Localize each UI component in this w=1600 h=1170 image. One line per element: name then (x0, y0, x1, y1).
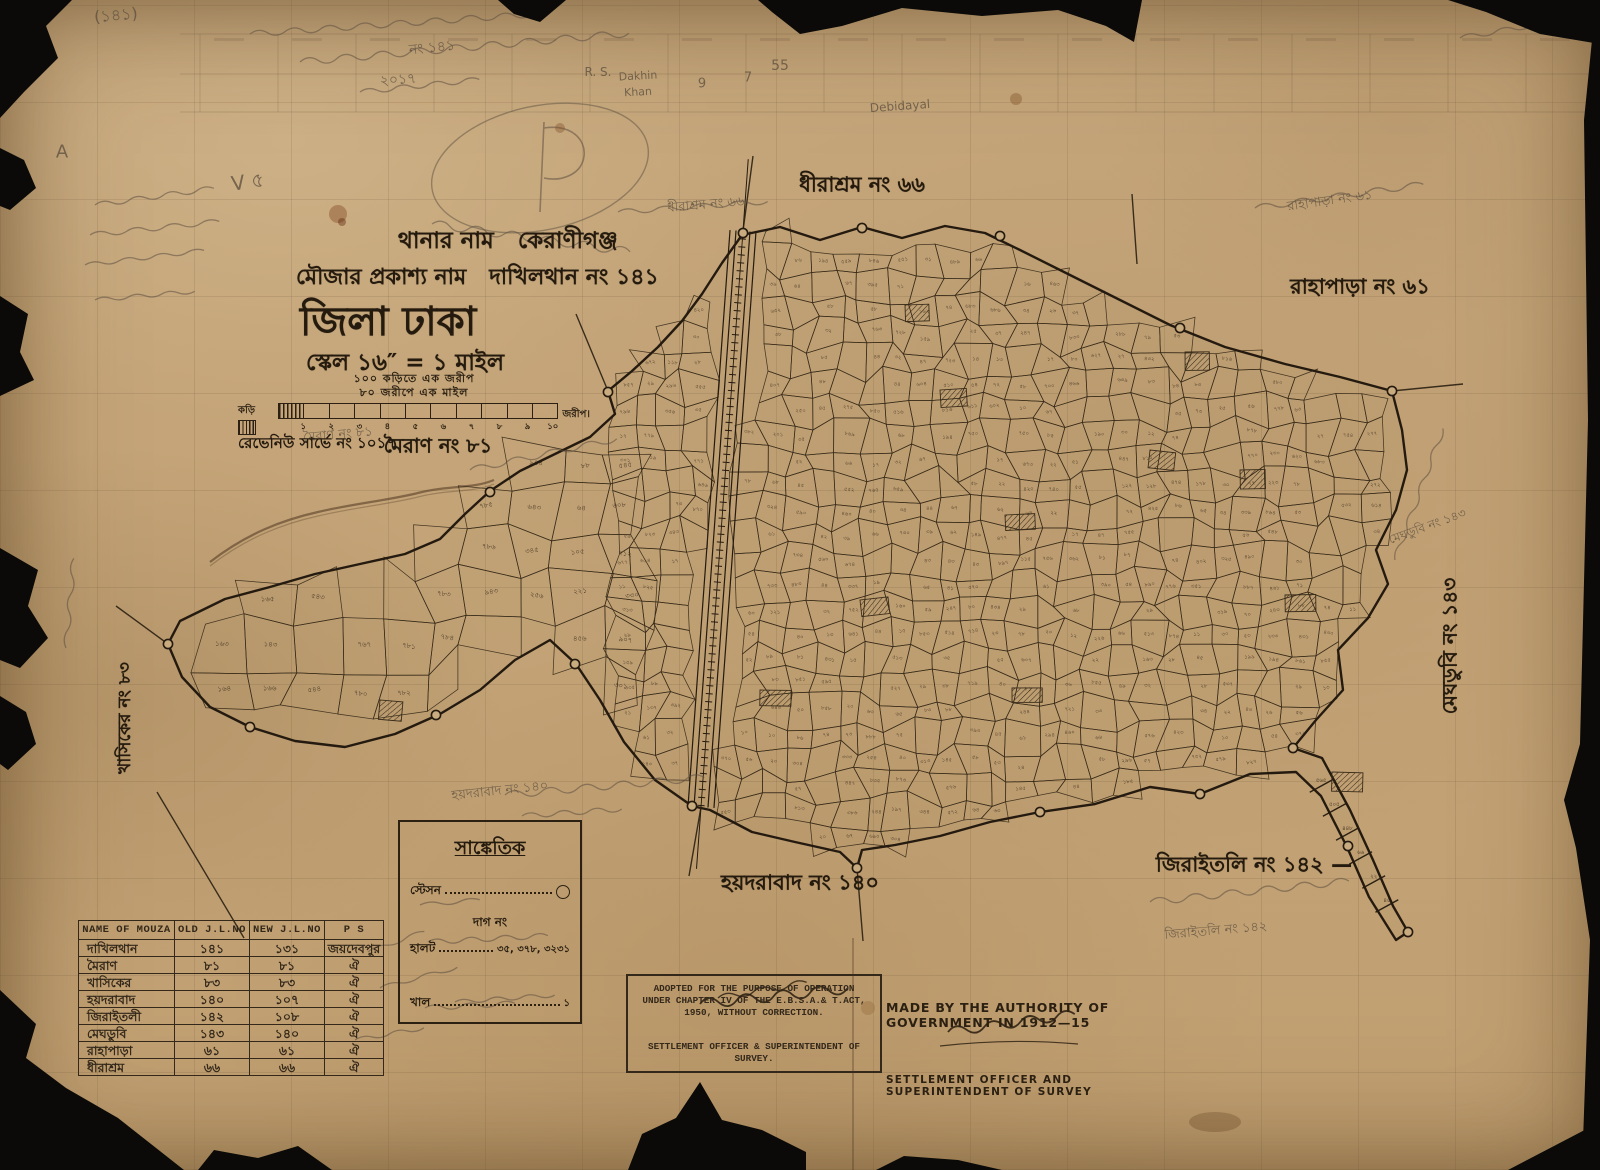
table-cell: ৮১ (174, 957, 249, 974)
table-cell: হয়দরাবাদ (79, 991, 175, 1008)
pencil-note: 55 (771, 58, 789, 74)
scale-tick-label: ৮ (474, 420, 502, 434)
legend-dotted-leader (445, 891, 552, 894)
mouza-value: দাখিলথান নং ১৪১ (489, 265, 659, 290)
scale-segment (482, 404, 507, 418)
table-cell: খাসিকের (79, 974, 175, 991)
legend-khal-value: ১ (564, 996, 571, 1013)
scale-segment (533, 404, 557, 418)
legend-box: সাঙ্কেতিক স্টেসন দাগ নং হালট ৩৫, ৩৭৮, ৩২… (398, 820, 582, 1024)
scale-segment (457, 404, 482, 418)
table-cell: ঐ (324, 991, 383, 1008)
legend-dotted-leader (439, 949, 493, 952)
scale-segment (279, 404, 304, 418)
table-cell: ৮৩ (249, 974, 324, 991)
mouza-label: ধীরাশ্রম নং ৬৬ (799, 169, 925, 204)
scale-tick-label: ৯ (502, 420, 530, 434)
table-cell: ঐ (324, 957, 383, 974)
table-header-cell: OLD J.L.NO (174, 921, 249, 940)
pencil-note: (১৪১) (93, 1, 139, 32)
scale-segment (431, 404, 456, 418)
authority-line-1: MADE BY THE AUTHORITY OF GOVERNMENT IN 1… (886, 1000, 1196, 1030)
table-cell: ৬৬ (249, 1059, 324, 1076)
table-cell: ১০৭ (249, 991, 324, 1008)
stamp-line-2: UNDER CHAPTER IV OF THE E.B.S.A.& T.ACT, (634, 995, 874, 1007)
table-cell: ধীরাশ্রম (79, 1059, 175, 1076)
stamp-line-4: SETTLEMENT OFFICER & SUPERINTENDENT OF (634, 1041, 874, 1053)
table-cell: ১৪২ (174, 1008, 249, 1025)
pencil-note: 7 (744, 71, 752, 86)
table-cell: ঐ (324, 1042, 383, 1059)
mouza-label: রাহাপাড়া নং ৬১ (1290, 271, 1430, 306)
legend-station-label: স্টেসন (410, 882, 441, 902)
authority-line-2: SETTLEMENT OFFICER AND SUPERINTENDENT OF… (886, 1074, 1196, 1098)
table-row: মেঘডুবি১৪৩১৪০ঐ (79, 1025, 384, 1042)
table-cell: ঐ (324, 1008, 383, 1025)
legend-dag-label: দাগ নং (400, 914, 580, 934)
pencil-note: A (56, 142, 68, 163)
mouza-label: মেঘডুবি নং ১৪৩ (1436, 578, 1469, 715)
scale-tick-label: ৬ (418, 420, 446, 434)
mouza-table-header: NAME OF MOUZAOLD J.L.NONEW J.L.NOP S (79, 921, 384, 940)
legend-dotted-leader (434, 1003, 559, 1006)
scale-segment (330, 404, 355, 418)
scale-segment (406, 404, 431, 418)
table-cell: মৈরাণ (79, 957, 175, 974)
pencil-note: 9 (698, 77, 706, 92)
pencil-note: ২০১৭ (379, 67, 417, 93)
stamp-line-1: ADOPTED FOR THE PURPOSE OF OPERATION (634, 983, 874, 995)
table-cell: ১৪১ (174, 940, 249, 957)
table-cell: ১৩১ (249, 940, 324, 957)
table-cell: ৬১ (174, 1042, 249, 1059)
table-row: দাখিলথান১৪১১৩১জয়দেবপুর (79, 940, 384, 957)
scale-segment (381, 404, 406, 418)
mouza-label: মৈরাণ নং ৮১ (384, 432, 493, 465)
scale-tick-label: ১০ (530, 420, 558, 434)
mouza-label: খাসিকের নং ৮৩ (112, 662, 140, 774)
table-row: ধীরাশ্রম৬৬৬৬ঐ (79, 1059, 384, 1076)
table-cell: ৮৩ (174, 974, 249, 991)
scale-segment (508, 404, 533, 418)
table-cell: ১৪৩ (174, 1025, 249, 1042)
table-cell: ১০৮ (249, 1008, 324, 1025)
mouza-table-body: দাখিলথান১৪১১৩১জয়দেবপুরমৈরাণ৮১৮১ঐখাসিকের… (79, 940, 384, 1076)
mouza-label: হয়দরাবাদ নং ১৪০ (721, 867, 879, 902)
adoption-stamp: ADOPTED FOR THE PURPOSE OF OPERATION UND… (626, 974, 882, 1073)
mouza-jl-table: NAME OF MOUZAOLD J.L.NONEW J.L.NOP S দাখ… (78, 920, 384, 1076)
scale-bar: ১০০ কড়িতে এক জরীপ ৮০ জরীপে এক মাইল কড়ি… (238, 372, 590, 435)
scale-tick-label: ৭ (446, 420, 474, 434)
table-header-cell: NAME OF MOUZA (79, 921, 175, 940)
table-cell: ঐ (324, 1059, 383, 1076)
scale-jorip-unit: জরীপ। (562, 407, 590, 424)
table-cell: জয়দেবপুর (324, 940, 383, 957)
table-row: হয়দরাবাদ১৪০১০৭ঐ (79, 991, 384, 1008)
pencil-note: Khan (624, 85, 653, 99)
pencil-note: V ৫ (229, 165, 266, 202)
legend-halot-label: হালট (410, 940, 435, 960)
legend-halot-value: ৩৫, ৩৭৮, ৩২৩১ (497, 942, 570, 959)
thana-name-line: থানার নাম কেরাণীগঞ্জ (398, 222, 618, 261)
pencil-note: নং ১৪১ (408, 34, 456, 63)
table-header-cell: NEW J.L.NO (249, 921, 324, 940)
authority-block: MADE BY THE AUTHORITY OF GOVERNMENT IN 1… (886, 1000, 1196, 1098)
table-cell: দাখিলথান (79, 940, 175, 957)
table-cell: জিরাইতলী (79, 1008, 175, 1025)
scale-kori-unit: কড়ি (238, 403, 278, 435)
table-cell: ১৪০ (174, 991, 249, 1008)
table-row: রাহাপাড়া৬১৬১ঐ (79, 1042, 384, 1059)
stamp-signature-space (634, 1019, 874, 1041)
stamp-line-3: 1950, WITHOUT CORRECTION. (634, 1007, 874, 1019)
pencil-note: Dakhin (618, 68, 657, 83)
paper-crease (852, 938, 854, 1170)
table-cell: ঐ (324, 1025, 383, 1042)
stamp-line-5: SURVEY. (634, 1053, 874, 1065)
legend-khal-label: খাল (410, 994, 430, 1014)
table-header-cell: P S (324, 921, 383, 940)
scale-segment (304, 404, 329, 418)
mouza-label: জিরাইতলি নং ১৪২ — (1156, 849, 1352, 884)
table-row: মৈরাণ৮১৮১ঐ (79, 957, 384, 974)
scale-caption-2: ৮০ জরীপে এক মাইল (238, 386, 590, 400)
pencil-note: R. S. (585, 65, 612, 79)
mouza-label-text: মৌজার প্রকাশ্য নাম (296, 265, 466, 290)
station-circle-icon (556, 885, 570, 899)
table-cell: ৬৬ (174, 1059, 249, 1076)
table-cell: ৮১ (249, 957, 324, 974)
table-cell: ১৪০ (249, 1025, 324, 1042)
thana-label: থানার নাম (398, 228, 494, 254)
table-row: জিরাইতলী১৪২১০৮ঐ (79, 1008, 384, 1025)
table-cell: মেঘডুবি (79, 1025, 175, 1042)
table-cell: রাহাপাড়া (79, 1042, 175, 1059)
scale-caption-1: ১০০ কড়িতে এক জরীপ (238, 372, 590, 386)
legend-title: সাঙ্কেতিক (400, 834, 580, 866)
revenue-survey-number: রেভেনিউ সার্ভে নং ১০১৭ (238, 432, 396, 457)
table-cell: ঐ (324, 974, 383, 991)
table-cell: ৬১ (249, 1042, 324, 1059)
table-row: খাসিকের৮৩৮৩ঐ (79, 974, 384, 991)
thana-value: কেরাণীগঞ্জ (518, 228, 618, 254)
scale-bar-graphic (278, 403, 558, 419)
scale-segment (355, 404, 380, 418)
